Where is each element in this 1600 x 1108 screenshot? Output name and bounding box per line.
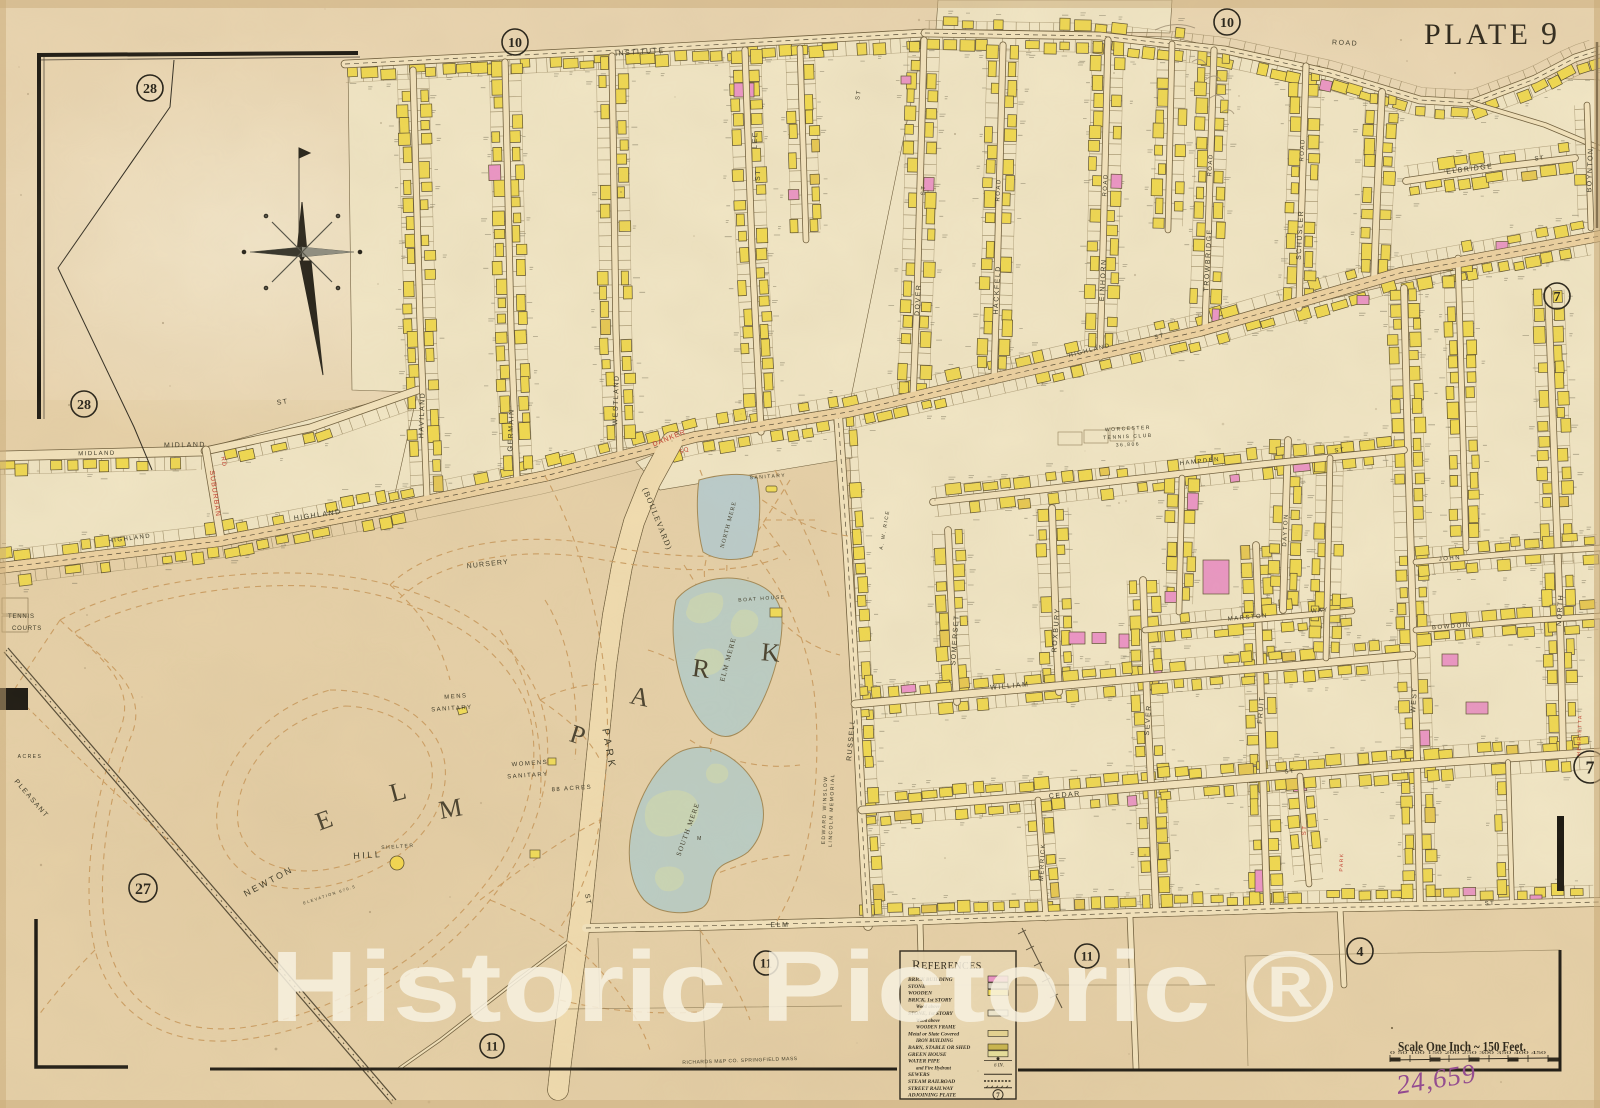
svg-text:Historic Pictoric ®: Historic Pictoric ® [270,931,1335,1043]
